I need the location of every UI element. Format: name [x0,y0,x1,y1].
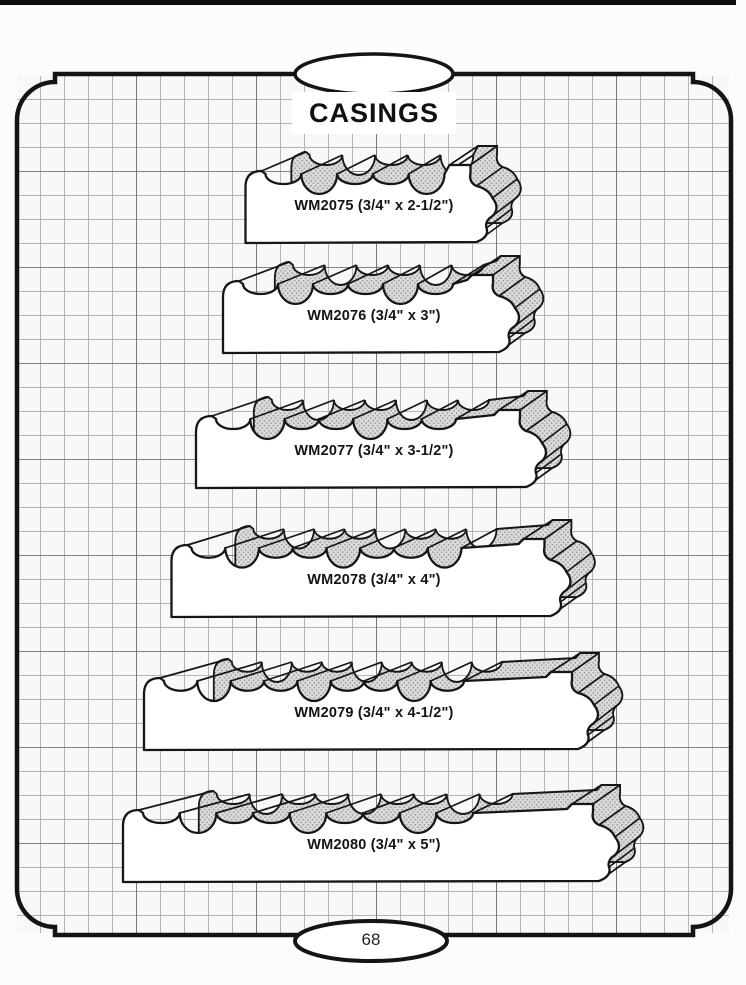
casing-profile-drawing-wm2075 [246,146,521,243]
casing-profile-drawing-wm2077 [196,391,570,488]
casing-label-wm2080: WM2080 (3/4" x 5") [234,837,514,853]
casing-label-wm2079: WM2079 (3/4" x 4-1/2") [234,705,514,721]
casing-profile-drawing-wm2076 [223,256,543,353]
casing-label-wm2078: WM2078 (3/4" x 4") [234,572,514,588]
scan-artifact-bar [0,0,736,5]
casing-profile-drawing-wm2079 [144,653,622,750]
casing-label-wm2076: WM2076 (3/4" x 3") [234,308,514,324]
page-number: 68 [331,930,411,950]
page-title: CASINGS [309,98,439,129]
casing-label-wm2077: WM2077 (3/4" x 3-1/2") [234,443,514,459]
page-title-box: CASINGS [292,92,456,134]
casing-label-wm2075: WM2075 (3/4" x 2-1/2") [234,198,514,214]
casing-profile-drawing-wm2080 [123,785,643,882]
top-border-ellipse [295,54,453,94]
catalog-page: CASINGS WM2075 (3/4" x 2-1/2") WM2076 (3… [0,0,746,985]
casing-profile-drawing-wm2078 [172,520,595,617]
